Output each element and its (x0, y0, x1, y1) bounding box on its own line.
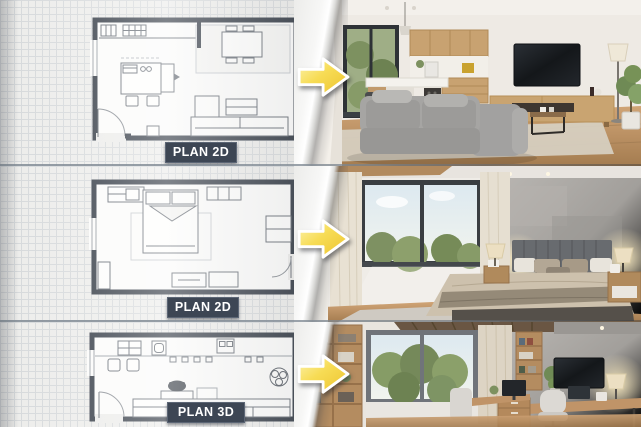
tv (514, 44, 580, 86)
plan-bed (143, 190, 198, 253)
floorplan-living-room-drawing (0, 0, 302, 166)
plan-window (90, 40, 100, 76)
floorplan-bedroom-drawing (0, 166, 302, 322)
arrow-right-icon (297, 54, 353, 100)
bedroom-window (360, 180, 483, 272)
panel-bedroom: PLAN 2D (0, 166, 641, 322)
plan-to-render-collage: PLAN 2D (0, 0, 641, 427)
arrow-right-icon (297, 351, 353, 397)
arrow-right-icon (297, 216, 353, 262)
floorplan-bedroom: PLAN 2D (0, 166, 302, 322)
plan-type-badge: PLAN 2D (165, 142, 237, 163)
row-divider (0, 164, 641, 166)
plan-window (89, 218, 99, 250)
floorplan-home-office: PLAN 3D (0, 322, 302, 427)
panel-living-room: PLAN 2D (0, 0, 641, 166)
plan-type-badge: PLAN 2D (167, 297, 239, 318)
plan-dining-area (196, 20, 290, 73)
floorplan-home-office-drawing (0, 322, 302, 427)
plan-type-badge: PLAN 3D (167, 402, 245, 423)
floorplan-living-room: PLAN 2D (0, 0, 302, 166)
row-divider (0, 320, 641, 322)
wall-monitor (554, 358, 604, 388)
panel-home-office: PLAN 3D (0, 322, 641, 427)
